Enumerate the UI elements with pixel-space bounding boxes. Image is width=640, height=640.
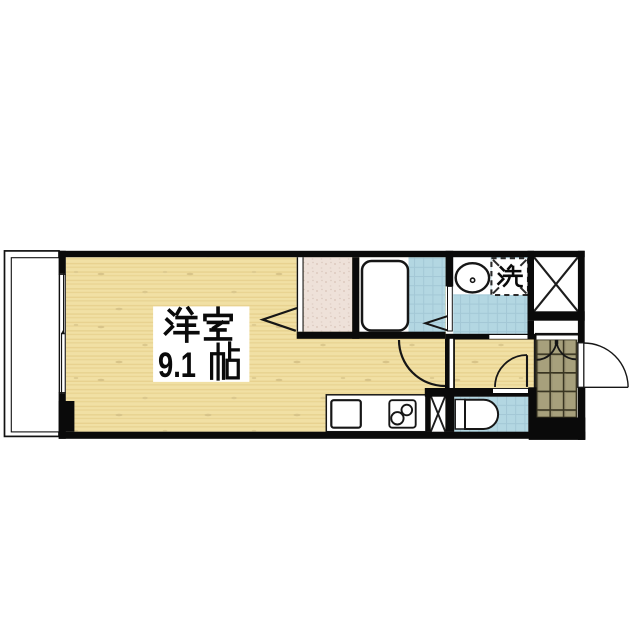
svg-text:9.1: 9.1 (158, 346, 196, 385)
